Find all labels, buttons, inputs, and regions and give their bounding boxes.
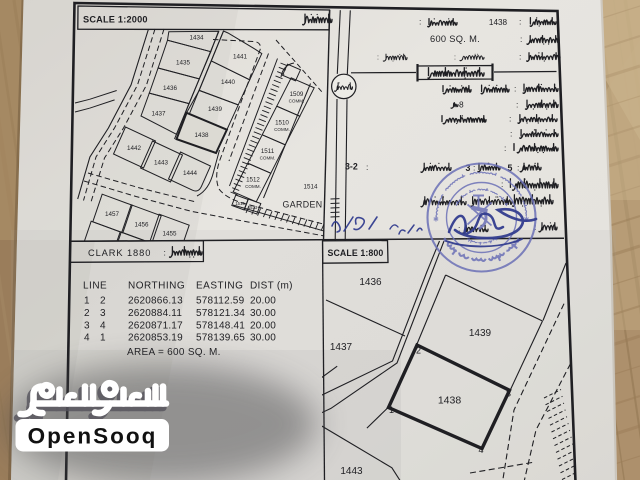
svg-text:2620871.17: 2620871.17 [128,321,183,332]
svg-text:2: 2 [84,308,90,319]
svg-text:EASTING: EASTING [196,281,243,292]
svg-text::: : [510,129,512,139]
svg-text:1511: 1511 [261,148,275,155]
svg-text:1436: 1436 [359,277,382,288]
svg-text:1: 1 [389,405,394,415]
svg-text:8: 8 [459,100,464,110]
svg-text:COMM.: COMM. [260,156,276,161]
svg-text:1442: 1442 [127,145,142,152]
svg-text::: : [519,17,521,27]
svg-text::: : [164,248,166,258]
svg-text:30.00: 30.00 [250,333,276,344]
svg-text::: : [514,84,516,94]
svg-text:AREA = 600 SQ. M.: AREA = 600 SQ. M. [127,347,221,358]
svg-text:NORTHING: NORTHING [128,281,185,292]
svg-text:3: 3 [506,389,511,399]
svg-text:20.00: 20.00 [250,321,276,332]
svg-text:4: 4 [100,321,106,332]
svg-text:1438: 1438 [438,395,462,407]
svg-text:1444: 1444 [183,170,198,177]
svg-text:2620853.19: 2620853.19 [128,333,183,344]
svg-text:1438: 1438 [194,132,209,139]
svg-text:COMM.: COMM. [289,99,305,104]
svg-text::: : [519,52,521,62]
svg-text:1: 1 [100,333,106,344]
svg-text:1: 1 [84,296,90,307]
svg-text:1439: 1439 [208,106,223,113]
svg-text:1435: 1435 [176,59,191,66]
svg-text:600 SQ. M.: 600 SQ. M. [430,34,480,44]
svg-text:1523: 1523 [248,205,258,210]
svg-text:SCALE 1:800: SCALE 1:800 [328,248,384,258]
svg-text:1434: 1434 [189,35,204,42]
svg-text:COMM.: COMM. [245,184,261,189]
svg-text:1440: 1440 [221,79,236,86]
svg-text:1510: 1510 [275,120,289,127]
svg-text:CLARK 1880: CLARK 1880 [88,248,151,258]
svg-text:1457: 1457 [105,211,120,218]
svg-text:1509: 1509 [290,91,304,98]
svg-text:2: 2 [100,296,106,307]
svg-text:✱: ✱ [433,216,439,224]
svg-text:GARDEN: GARDEN [282,200,322,210]
svg-text:578112.59: 578112.59 [196,296,245,307]
svg-text:1441: 1441 [233,53,248,60]
svg-text:3: 3 [100,308,106,319]
svg-text:COMM.: COMM. [274,127,290,132]
svg-text:3: 3 [84,321,90,332]
svg-text::: : [504,143,506,153]
svg-text:30.00: 30.00 [250,308,276,319]
svg-text::: : [520,34,522,44]
svg-text:1438: 1438 [489,18,508,27]
svg-text::: : [454,55,456,62]
svg-text:20.00: 20.00 [250,296,276,307]
svg-text:SCALE 1:2000: SCALE 1:2000 [83,15,148,25]
svg-text:578121.34: 578121.34 [196,308,245,319]
svg-text:DIST (m): DIST (m) [250,281,293,292]
svg-text:OpenSooq: OpenSooq [28,424,158,449]
svg-text:1443: 1443 [340,466,363,477]
svg-text:1514: 1514 [303,183,318,190]
svg-text::: : [516,100,518,110]
svg-text:1443: 1443 [154,159,169,166]
svg-text:2620866.13: 2620866.13 [128,296,183,307]
svg-text:LINE: LINE [83,281,107,292]
svg-text:4: 4 [479,445,484,455]
svg-text:1437: 1437 [330,342,353,353]
svg-text:4: 4 [84,333,90,344]
svg-text:1439: 1439 [469,328,492,339]
svg-text:1512: 1512 [246,177,260,184]
svg-text::: : [419,17,421,27]
svg-text:2620884.11: 2620884.11 [128,308,182,319]
svg-text::: : [501,179,503,189]
svg-text:1436: 1436 [163,85,178,92]
svg-text:1455: 1455 [162,230,177,237]
svg-text:1515: 1515 [235,201,245,206]
svg-text::: : [517,163,519,173]
svg-text:1437: 1437 [151,110,166,117]
svg-text:2: 2 [416,346,421,356]
svg-text::: : [377,55,379,62]
svg-text::: : [509,114,511,124]
svg-text:3-2: 3-2 [345,161,358,171]
svg-text::: : [366,162,368,172]
svg-text:1456: 1456 [134,221,149,228]
svg-text:578148.41: 578148.41 [196,321,245,332]
svg-text:578139.65: 578139.65 [196,333,245,344]
